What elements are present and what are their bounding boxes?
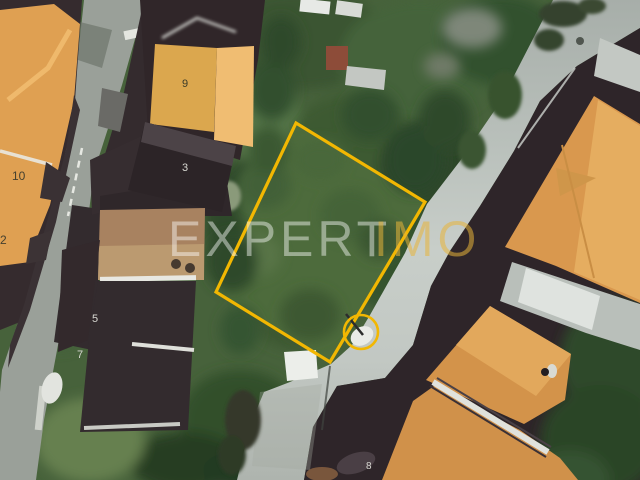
- svg-text:EXPERT: EXPERT: [168, 211, 391, 267]
- svg-text:IMO: IMO: [374, 211, 480, 267]
- svg-text:5: 5: [92, 313, 98, 325]
- svg-text:7: 7: [77, 349, 83, 361]
- svg-text:8: 8: [366, 461, 372, 472]
- svg-text:10: 10: [12, 169, 26, 183]
- svg-text:2: 2: [0, 233, 7, 247]
- svg-text:9: 9: [182, 78, 188, 90]
- svg-text:3: 3: [182, 162, 188, 174]
